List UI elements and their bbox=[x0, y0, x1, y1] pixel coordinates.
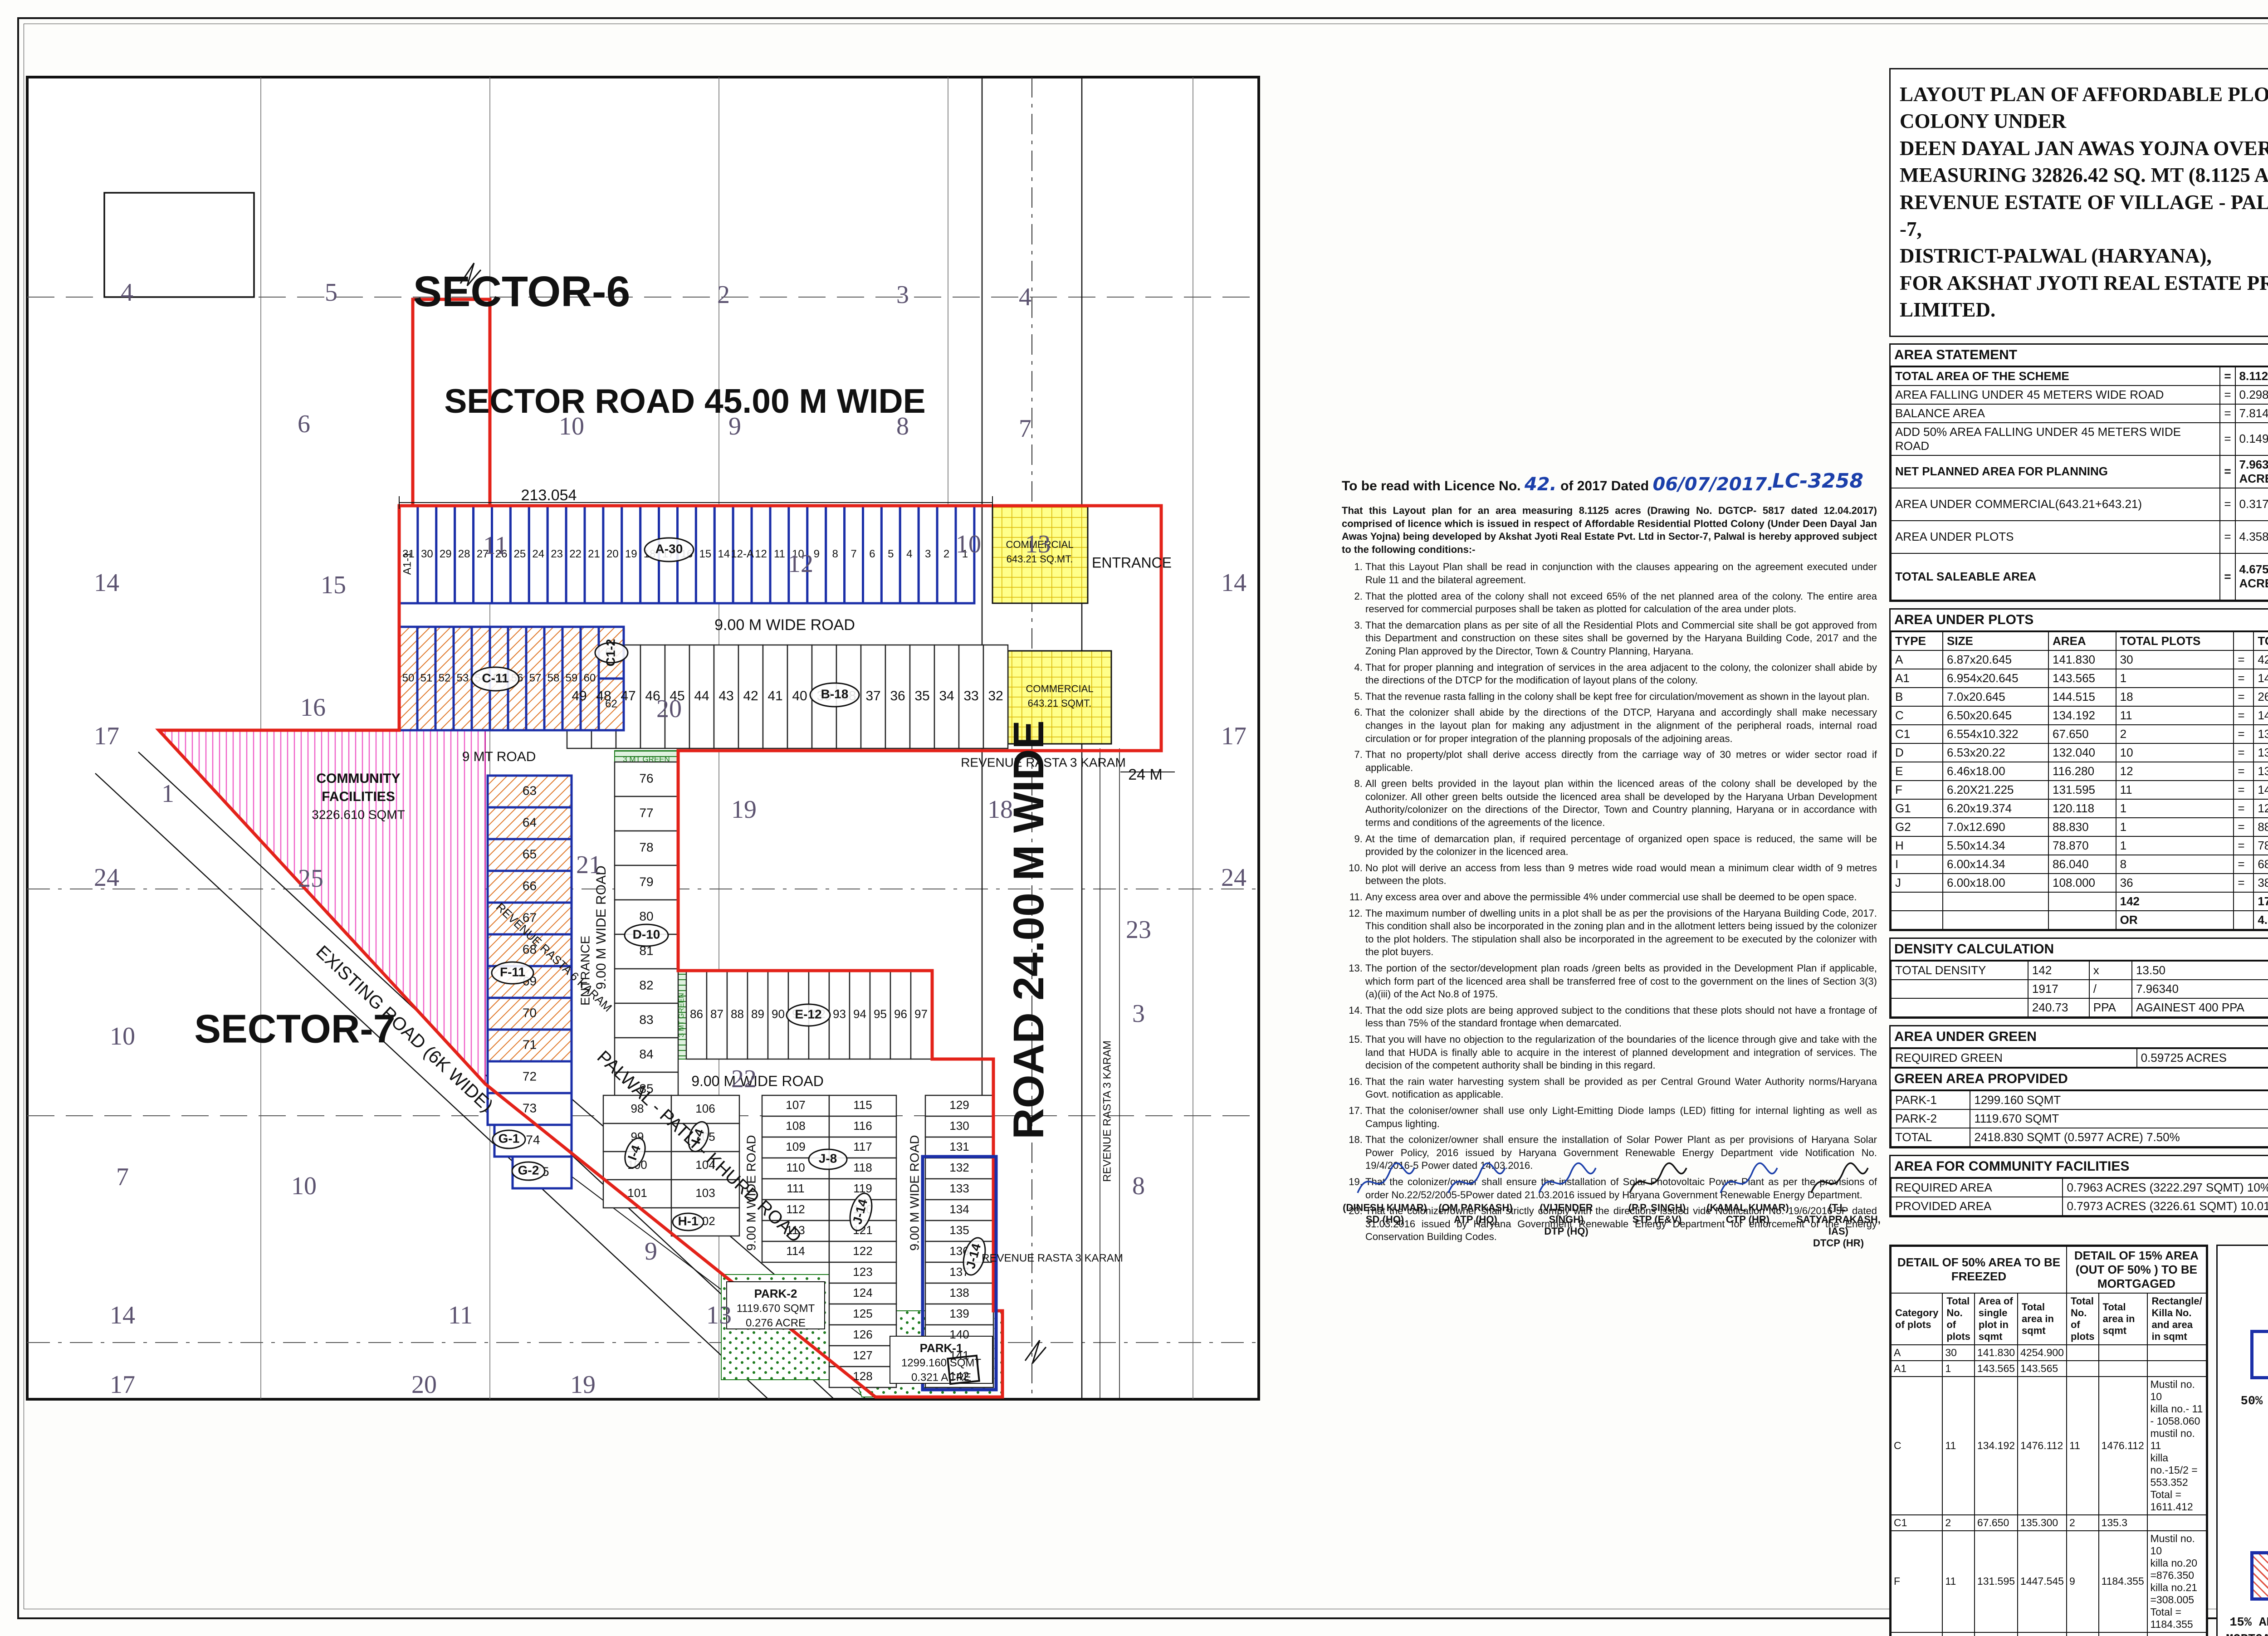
block-label-J-8: J-8 bbox=[809, 1149, 847, 1169]
table-cell: 17638.624 bbox=[2253, 892, 2268, 911]
table-cell bbox=[2067, 1345, 2099, 1361]
table-row: TOTAL DENSITY142x13.501917 PERSONS bbox=[1891, 961, 2268, 980]
table-row: H5.50x14.3478.8701=78.870Sq.Mt bbox=[1891, 836, 2268, 855]
table-cell: 1917 bbox=[2028, 980, 2089, 998]
map-label: SECTOR-6 bbox=[413, 268, 631, 316]
block-label-F-11: F-11 bbox=[492, 962, 533, 984]
table-cell: 6.00x14.34 bbox=[1943, 855, 2048, 874]
table-cell: = bbox=[2220, 521, 2235, 553]
table-cell: 7.96340 bbox=[2132, 980, 2268, 998]
plot-number: 25 bbox=[513, 548, 526, 560]
table-cell: 5.50x14.34 bbox=[1943, 836, 2048, 855]
plot-number: 57 bbox=[529, 672, 542, 684]
survey-number: 7 bbox=[116, 1163, 129, 1191]
survey-number: 14 bbox=[1221, 569, 1246, 597]
plot-number: 90 bbox=[772, 1007, 785, 1021]
plot-number: 59 bbox=[566, 672, 578, 684]
table-cell: 2 bbox=[1942, 1515, 1975, 1531]
table-cell: 1476.112 bbox=[2018, 1377, 2067, 1515]
plot-number: 2 bbox=[943, 548, 949, 560]
block-label-A-30: A-30 bbox=[645, 538, 694, 562]
table-cell: 116.280 bbox=[2048, 762, 2116, 781]
area-statement: AREA STATEMENT TOTAL AREA OF THE SCHEME=… bbox=[1889, 343, 2268, 602]
table-cell: 11 bbox=[2116, 781, 2234, 799]
survey-number: 24 bbox=[1221, 864, 1246, 892]
table-row: TOTAL SALEABLE AREA=4.6758 ACRES18925.04… bbox=[1891, 553, 2268, 600]
area-statement-table: TOTAL AREA OF THE SCHEME=8.1125 ACRES328… bbox=[1891, 366, 2268, 601]
table-row: C6.50x20.645134.19211=1476.112Sq.Mt bbox=[1891, 706, 2268, 725]
table-cell: NET PLANNED AREA FOR PLANNING bbox=[1891, 455, 2220, 488]
table-cell: = bbox=[2234, 688, 2253, 706]
table-cell: AREA UNDER PLOTS bbox=[1891, 521, 2220, 553]
plot-number: 128 bbox=[853, 1369, 872, 1383]
table-cell: TYPE bbox=[1891, 632, 1943, 650]
table-cell: 11 bbox=[1942, 1531, 1975, 1632]
plot-number: 36 bbox=[890, 689, 905, 703]
plot-number: 8 bbox=[832, 548, 838, 560]
plot-number: 106 bbox=[695, 1102, 715, 1115]
table-cell: AGAINEST 400 PPA bbox=[2132, 998, 2268, 1017]
survey-number: 18 bbox=[987, 796, 1013, 824]
table-cell: 120.118 bbox=[2253, 799, 2268, 818]
block-label-D-10: D-10 bbox=[625, 924, 668, 946]
signatory-name: (P.P. SINGH) bbox=[1614, 1202, 1700, 1214]
table-cell: ADD 50% AREA FALLING UNDER 45 METERS WID… bbox=[1891, 423, 2220, 455]
table-cell: 1 bbox=[2116, 818, 2234, 836]
block-label-text: H-1 bbox=[678, 1214, 698, 1228]
signature-squiggle-icon bbox=[1623, 1161, 1691, 1202]
plot-number: 28 bbox=[458, 548, 470, 560]
table-cell: J bbox=[1891, 874, 1943, 892]
note-item: The maximum number of dwelling units in … bbox=[1365, 907, 1877, 959]
plot-number: 117 bbox=[853, 1140, 872, 1153]
table-cell: = bbox=[2234, 855, 2253, 874]
survey-number: 5 bbox=[325, 278, 337, 307]
area-under-plots-title: AREA UNDER PLOTS bbox=[1891, 610, 2268, 631]
table-cell: 1 bbox=[1942, 1632, 1975, 1636]
signature-squiggle-icon bbox=[1351, 1161, 1419, 1202]
map-label: PARK-2 bbox=[754, 1287, 797, 1300]
table-cell: 142 bbox=[2028, 961, 2089, 980]
table-cell: = bbox=[2220, 423, 2235, 455]
table-row: 1917/7.96340ACRES bbox=[1891, 980, 2268, 998]
table-cell: 1395.360 bbox=[2253, 762, 2268, 781]
table-row: TYPESIZEAREATOTAL PLOTSTOTAL AREA bbox=[1891, 632, 2268, 650]
table-cell: 131.595 bbox=[2048, 781, 2116, 799]
mortgage-legend-item: 15% AREA OUT OF 50% TO BE MORTGAGED IN F… bbox=[2222, 1551, 2268, 1636]
plot-number: 12-A bbox=[731, 548, 754, 560]
table-cell bbox=[1891, 980, 2028, 998]
map-label: FACILITIES bbox=[322, 789, 395, 804]
table-cell bbox=[1891, 998, 2028, 1017]
table-row: C1267.650135.3002135.3 bbox=[1891, 1515, 2206, 1531]
table-cell bbox=[1891, 892, 1943, 911]
table-row: A16.954x20.645143.5651=143.565Sq.Mt bbox=[1891, 669, 2268, 688]
freeze-title: DETAIL OF 50% AREA TO BE FREEZED bbox=[1891, 1246, 2067, 1293]
table-cell: 6.554x10.322 bbox=[1943, 725, 2048, 743]
table-cell: 67.650 bbox=[1975, 1515, 2018, 1531]
plot-number: 95 bbox=[874, 1007, 887, 1021]
table-cell: = bbox=[2234, 743, 2253, 762]
table-cell: TOTAL DENSITY bbox=[1891, 961, 2028, 980]
table-cell: PPA bbox=[2089, 998, 2132, 1017]
block-label-B-18: B-18 bbox=[810, 683, 859, 707]
block-label-E-12: E-12 bbox=[787, 1004, 830, 1026]
survey-number: 8 bbox=[1132, 1172, 1145, 1200]
freeze-swatch bbox=[2250, 1330, 2268, 1379]
table-cell: 11 bbox=[1942, 1377, 1975, 1515]
area-under-green: AREA UNDER GREEN REQUIRED GREEN0.59725 A… bbox=[1889, 1025, 2268, 1148]
survey-number: 10 bbox=[110, 1022, 135, 1050]
plot-number: 82 bbox=[639, 978, 653, 992]
table-cell: 1 bbox=[2116, 799, 2234, 818]
survey-number: 7 bbox=[1019, 415, 1031, 443]
map-label: 3226.610 SQMT bbox=[312, 807, 405, 821]
survey-number: 6 bbox=[298, 410, 310, 438]
map-label: 3 MT GREEN bbox=[678, 993, 685, 1037]
table-cell bbox=[2099, 1361, 2148, 1377]
table-cell: 1184.355 bbox=[2099, 1531, 2148, 1632]
table-cell: SIZE bbox=[1943, 632, 2048, 650]
table-row: I6.00x14.3486.0408=688.320Sq.Mt bbox=[1891, 855, 2268, 874]
signatory-name: (DINESH KUMAR) bbox=[1342, 1202, 1428, 1214]
table-cell: A1 bbox=[1891, 1361, 1942, 1377]
table-cell: 4254.900 bbox=[2018, 1345, 2067, 1361]
plot-number: 86 bbox=[690, 1007, 703, 1021]
survey-number: 11 bbox=[448, 1301, 473, 1329]
signatory-role: DTCP (HR) bbox=[1795, 1237, 1882, 1249]
table-cell: 1447.545 bbox=[2018, 1531, 2067, 1632]
note-item: That the plotted area of the colony shal… bbox=[1365, 590, 1877, 616]
plot-number: 40 bbox=[792, 689, 807, 703]
map-label: 643.21 SQMT. bbox=[1028, 698, 1092, 709]
survey-number: 2 bbox=[717, 281, 730, 309]
plot-number: 30 bbox=[421, 548, 433, 560]
table-cell: F bbox=[1891, 1531, 1942, 1632]
plot-number: 127 bbox=[853, 1348, 872, 1362]
table-cell: = bbox=[2220, 367, 2235, 386]
table-cell: C1 bbox=[1891, 1515, 1942, 1531]
table-cell: = bbox=[2234, 818, 2253, 836]
area-under-plots-body: TYPESIZEAREATOTAL PLOTSTOTAL AREAA6.87x2… bbox=[1891, 632, 2268, 929]
map-label: 9.00 M WIDE ROAD bbox=[907, 1135, 921, 1250]
table-cell: OR bbox=[2116, 911, 2234, 929]
table-cell: = bbox=[2234, 669, 2253, 688]
table-cell: G1 bbox=[1891, 1632, 1942, 1636]
detail-col-header: Category of plots bbox=[1891, 1293, 1942, 1345]
table-cell: TOTAL AREA bbox=[2253, 632, 2268, 650]
plot-number: 64 bbox=[523, 815, 537, 829]
plot-number: 84 bbox=[639, 1047, 653, 1061]
table-cell: TOTAL SALEABLE AREA bbox=[1891, 553, 2220, 600]
survey-number: 13 bbox=[706, 1301, 732, 1329]
survey-number: 13 bbox=[1025, 530, 1051, 558]
table-cell: 141.830 bbox=[1975, 1345, 2018, 1361]
table-cell: C bbox=[1891, 706, 1943, 725]
survey-number: 25 bbox=[298, 864, 323, 893]
table-cell: H bbox=[1891, 836, 1943, 855]
notes-list: That this Layout Plan shall be read in c… bbox=[1342, 561, 1877, 1244]
table-cell: PARK-1 bbox=[1891, 1091, 1970, 1109]
table-cell: 142 bbox=[2116, 892, 2234, 911]
table-row: C11134.1921476.112111476.112Mustil no. 1… bbox=[1891, 1377, 2206, 1515]
survey-number: 20 bbox=[411, 1371, 437, 1399]
plot-number: 129 bbox=[949, 1098, 969, 1112]
map-label: 0.276 ACRE bbox=[746, 1317, 806, 1329]
table-row: A6.87x20.645141.83030=4254.934Sq.Mt bbox=[1891, 650, 2268, 669]
map-label: 1119.670 SQMT bbox=[737, 1302, 815, 1314]
table-cell bbox=[2048, 911, 2116, 929]
table-cell: 30 bbox=[1942, 1345, 1975, 1361]
table-cell: 6.87x20.645 bbox=[1943, 650, 2048, 669]
plot-number: 93 bbox=[833, 1007, 846, 1021]
table-row: J6.00x18.00108.00036=3888.000Sq.Mt bbox=[1891, 874, 2268, 892]
plot-number: 109 bbox=[786, 1140, 805, 1153]
table-cell: 6.50x20.645 bbox=[1943, 706, 2048, 725]
note-item: That this Layout Plan shall be read in c… bbox=[1365, 561, 1877, 586]
signature-squiggle-icon bbox=[1804, 1161, 1872, 1202]
plot-number: 101 bbox=[627, 1186, 647, 1200]
plot-number: 14 bbox=[718, 548, 730, 560]
plot-number: 122 bbox=[853, 1244, 872, 1258]
table-cell: AREA UNDER COMMERCIAL(643.21+643.21) bbox=[1891, 488, 2220, 521]
note-item: That for proper planning and integration… bbox=[1365, 661, 1877, 687]
detail-col-headers: Category of plotsTotal No. of plotsArea … bbox=[1891, 1293, 2206, 1345]
survey-number: 14 bbox=[94, 569, 119, 597]
table-cell: G2 bbox=[1891, 818, 1943, 836]
green-provided-body: PARK-11299.160 SQMT0.321 ACREPARK-21119.… bbox=[1891, 1091, 2268, 1147]
table-cell: / bbox=[2089, 980, 2132, 998]
table-cell: 1 bbox=[2116, 836, 2234, 855]
survey-number: 11 bbox=[483, 532, 508, 560]
required-green-body: REQUIRED GREEN0.59725 ACRES7.50% bbox=[1891, 1049, 2268, 1067]
plot-number: 103 bbox=[695, 1186, 715, 1200]
table-cell: = bbox=[2220, 404, 2235, 423]
block-label-text: G-2 bbox=[518, 1163, 539, 1177]
table-cell: D bbox=[1891, 743, 1943, 762]
table-cell: 0.59725 ACRES bbox=[2137, 1049, 2268, 1067]
detail-col-header: Rectangle/ Killa No. and area in sqmt bbox=[2147, 1293, 2206, 1345]
signatory-role: STP (E&V) bbox=[1614, 1214, 1700, 1226]
table-cell: I bbox=[1891, 855, 1943, 874]
table-cell: 13.50 bbox=[2132, 961, 2268, 980]
licence-pre: To be read with Licence No. bbox=[1342, 479, 1521, 493]
table-cell: 1299.160 SQMT bbox=[1970, 1091, 2268, 1109]
survey-number: 10 bbox=[559, 412, 584, 440]
table-cell: 1 bbox=[1942, 1361, 1975, 1377]
community-table: REQUIRED AREA0.7963 ACRES (3222.297 SQMT… bbox=[1891, 1178, 2268, 1216]
survey-number: 9 bbox=[645, 1237, 657, 1265]
signatory-role: DTP (HQ) bbox=[1523, 1226, 1609, 1237]
survey-number: 24 bbox=[94, 864, 119, 892]
plot-number: 125 bbox=[853, 1307, 872, 1320]
table-cell: 7.8143 ACRES bbox=[2235, 404, 2268, 423]
table-cell bbox=[1943, 892, 2048, 911]
table-cell: = bbox=[2220, 553, 2235, 600]
table-cell: 1 bbox=[2116, 669, 2234, 688]
table-cell: 131.595 bbox=[1975, 1531, 2018, 1632]
table-cell: PARK-2 bbox=[1891, 1109, 1970, 1128]
map-label: SECTOR-7 bbox=[194, 1006, 395, 1051]
plot-number: 131 bbox=[949, 1140, 969, 1153]
note-item: The portion of the sector/development pl… bbox=[1365, 962, 1877, 1001]
plot-number: 4 bbox=[906, 548, 912, 560]
note-item: That the demarcation plans as per site o… bbox=[1365, 619, 1877, 658]
notes-intro: That this Layout plan for an area measur… bbox=[1342, 504, 1877, 556]
table-cell: 135.300 bbox=[2018, 1515, 2067, 1531]
plot-number: 108 bbox=[786, 1119, 805, 1133]
detail-col-header: Area of single plot in sqmt bbox=[1975, 1293, 2018, 1345]
signatory-name: (T.L. SATYAPRAKASH, IAS) bbox=[1795, 1202, 1882, 1237]
table-cell: 6.20X21.225 bbox=[1943, 781, 2048, 799]
plot-number: 88 bbox=[731, 1007, 744, 1021]
block-label-text: B-18 bbox=[821, 687, 849, 701]
table-cell: TOTAL bbox=[1891, 1128, 1970, 1147]
survey-number: 22 bbox=[731, 1065, 757, 1093]
table-cell: REQUIRED GREEN bbox=[1891, 1049, 2137, 1067]
table-cell: 0.2982 ACRES bbox=[2235, 386, 2268, 404]
table-cell: 1476.112 bbox=[2099, 1377, 2148, 1515]
table-cell bbox=[2234, 632, 2253, 650]
table-cell: 88.830 bbox=[2253, 818, 2268, 836]
note-item: That the odd size plots are being approv… bbox=[1365, 1004, 1877, 1030]
table-cell: Mustil no. 10 killa no.- 11 - 1058.060 m… bbox=[2147, 1377, 2206, 1515]
density-table: TOTAL DENSITY142x13.501917 PERSONS1917/7… bbox=[1891, 961, 2268, 1017]
drawing-title: LAYOUT PLAN OF AFFORDABLE PLOTTED COLONY… bbox=[1891, 69, 2268, 336]
table-cell: PROVIDED AREA bbox=[1891, 1197, 2063, 1216]
plot-number: 80 bbox=[639, 909, 653, 923]
map-label: ENTRANCE bbox=[1092, 554, 1172, 571]
plot-number: 140 bbox=[949, 1328, 969, 1341]
note-item: That the colonizer shall abide by the di… bbox=[1365, 706, 1877, 745]
plot-number: 60 bbox=[584, 672, 596, 684]
plot-number: 83 bbox=[639, 1012, 653, 1026]
title-block: LAYOUT PLAN OF AFFORDABLE PLOTTED COLONY… bbox=[1889, 68, 2268, 337]
table-cell: 143.565 bbox=[1975, 1361, 2018, 1377]
table-cell: = bbox=[2234, 650, 2253, 669]
area-under-plots-table: TYPESIZEAREATOTAL PLOTSTOTAL AREAA6.87x2… bbox=[1891, 631, 2268, 930]
map-label: 24 M bbox=[1128, 766, 1163, 783]
table-cell: F bbox=[1891, 781, 1943, 799]
table-cell: 1476.112 bbox=[2253, 706, 2268, 725]
table-cell: 0.7973 ACRES (3226.61 SQMT) 10.01% bbox=[2063, 1197, 2268, 1216]
table-cell: 141.830 bbox=[2048, 650, 2116, 669]
table-cell: 1447.545 bbox=[2253, 781, 2268, 799]
table-row: A11143.565143.565 bbox=[1891, 1361, 2206, 1377]
table-cell: 120.118 bbox=[2048, 799, 2116, 818]
table-row: AREA UNDER PLOTS=4.358 ACRES17638.624 Sq… bbox=[1891, 521, 2268, 553]
table-row: PARK-11299.160 SQMT0.321 ACRE bbox=[1891, 1091, 2268, 1109]
block-label-H-1: H-1 bbox=[673, 1213, 704, 1231]
signatory: (T.L. SATYAPRAKASH, IAS)DTCP (HR) bbox=[1795, 1161, 1882, 1249]
table-cell: 144.515 bbox=[2048, 688, 2116, 706]
table-row: OR4.358 (ACRES) bbox=[1891, 911, 2268, 929]
plot-number: 43 bbox=[719, 689, 733, 703]
plot-number: 47 bbox=[621, 689, 635, 703]
plot-number: 19 bbox=[625, 548, 637, 560]
detail-head: DETAIL OF 50% AREA TO BE FREEZED DETAIL … bbox=[1891, 1246, 2206, 1345]
survey-number: 8 bbox=[896, 412, 909, 440]
note-item: That the coloniser/owner shall use only … bbox=[1365, 1104, 1877, 1130]
plot-number: 138 bbox=[949, 1286, 969, 1299]
survey-number: 9 bbox=[728, 412, 741, 440]
table-cell: 688.320 bbox=[2253, 855, 2268, 874]
survey-number: 20 bbox=[656, 695, 682, 723]
block-label-text: E-12 bbox=[795, 1007, 821, 1021]
table-cell: AREA bbox=[2048, 632, 2116, 650]
signatory: (P.P. SINGH)STP (E&V) bbox=[1614, 1161, 1700, 1249]
licence-date-handwritten: 06/07/2017. bbox=[1652, 474, 1774, 495]
table-cell: 6.46x18.00 bbox=[1943, 762, 2048, 781]
mortgage-label: 15% AREA OUT OF 50% TO BE MORTGAGED IN F… bbox=[2222, 1615, 2268, 1636]
green-title: AREA UNDER GREEN bbox=[1891, 1026, 2268, 1048]
plot-number: 15 bbox=[699, 548, 711, 560]
table-cell: 1320.400 bbox=[2253, 743, 2268, 762]
table-cell bbox=[2048, 892, 2116, 911]
plot-number: 62 bbox=[605, 698, 617, 710]
density-calculation: DENSITY CALCULATION TOTAL DENSITY142x13.… bbox=[1889, 938, 2268, 1019]
signatory-role: ATP (HQ) bbox=[1432, 1214, 1519, 1226]
table-cell: 0.1491 ACRES bbox=[2235, 423, 2268, 455]
table-cell: B bbox=[1891, 688, 1943, 706]
table-cell: 7.0x20.645 bbox=[1943, 688, 2048, 706]
table-cell: 4.358 (ACRES) bbox=[2253, 911, 2268, 929]
table-row: REQUIRED GREEN0.59725 ACRES7.50% bbox=[1891, 1049, 2268, 1067]
survey-number: 23 bbox=[1126, 916, 1151, 944]
table-cell: 88.830 bbox=[2048, 818, 2116, 836]
table-cell bbox=[2234, 911, 2253, 929]
plot-number: 23 bbox=[551, 548, 563, 560]
signatory: (VIJENDER SINGH)DTP (HQ) bbox=[1523, 1161, 1609, 1249]
table-cell: 7.0x12.690 bbox=[1943, 818, 2048, 836]
signatories-row: (DINESH KUMAR)SD (HQ)(OM PARKASH)ATP (HQ… bbox=[1342, 1161, 1882, 1249]
table-cell: 143.565 bbox=[2253, 669, 2268, 688]
note-item: That no property/plot shall derive acces… bbox=[1365, 748, 1877, 774]
plot-number: 66 bbox=[523, 879, 537, 893]
table-cell bbox=[1891, 911, 1943, 929]
map-label: 9.00 M WIDE ROAD bbox=[691, 1073, 824, 1089]
required-green-table: REQUIRED GREEN0.59725 ACRES7.50% bbox=[1891, 1048, 2268, 1068]
table-row: G11120.118120.118 bbox=[1891, 1632, 2206, 1636]
table-cell: 67.650 bbox=[2048, 725, 2116, 743]
table-cell: A1 bbox=[1891, 669, 1943, 688]
plot-number: 32 bbox=[988, 689, 1003, 703]
map-label: REVENUE RASTA 3 KARAM bbox=[961, 755, 1126, 769]
layout-plan-map: 31302928272625242322212019181716151412-A… bbox=[14, 68, 1275, 1411]
table-cell: 1119.670 SQMT bbox=[1970, 1109, 2268, 1128]
block-label-text: C1-2 bbox=[603, 639, 617, 667]
signatory: (DINESH KUMAR)SD (HQ) bbox=[1342, 1161, 1428, 1249]
freeze-legend: 50% AREA TO BE FREEZED 15% AREA OUT OF 5… bbox=[2216, 1245, 2268, 1636]
signature-squiggle-icon bbox=[1532, 1161, 1600, 1202]
table-row: F11131.5951447.54591184.355Mustil no. 10… bbox=[1891, 1531, 2206, 1632]
plot-number: 70 bbox=[523, 1006, 537, 1020]
table-row: A30141.8304254.900 bbox=[1891, 1345, 2206, 1361]
block-label-text: D-10 bbox=[633, 927, 660, 941]
table-row: AREA UNDER COMMERCIAL(643.21+643.21)=0.3… bbox=[1891, 488, 2268, 521]
table-cell: = bbox=[2234, 706, 2253, 725]
table-row: E6.46x18.00116.28012=1395.360Sq.Mt bbox=[1891, 762, 2268, 781]
map-label: PARK-1 bbox=[920, 1341, 963, 1355]
plot-number: 73 bbox=[523, 1101, 537, 1115]
map-label: COMMERCIAL bbox=[1026, 683, 1093, 694]
table-cell: 0.7963 ACRES (3222.297 SQMT) 10% bbox=[2063, 1178, 2268, 1197]
plot-number: 21 bbox=[588, 548, 600, 560]
block-label-text: C-11 bbox=[482, 671, 508, 685]
table-cell: 108.000 bbox=[2048, 874, 2116, 892]
plot-number: 35 bbox=[914, 689, 929, 703]
plot-number: 76 bbox=[639, 771, 653, 785]
